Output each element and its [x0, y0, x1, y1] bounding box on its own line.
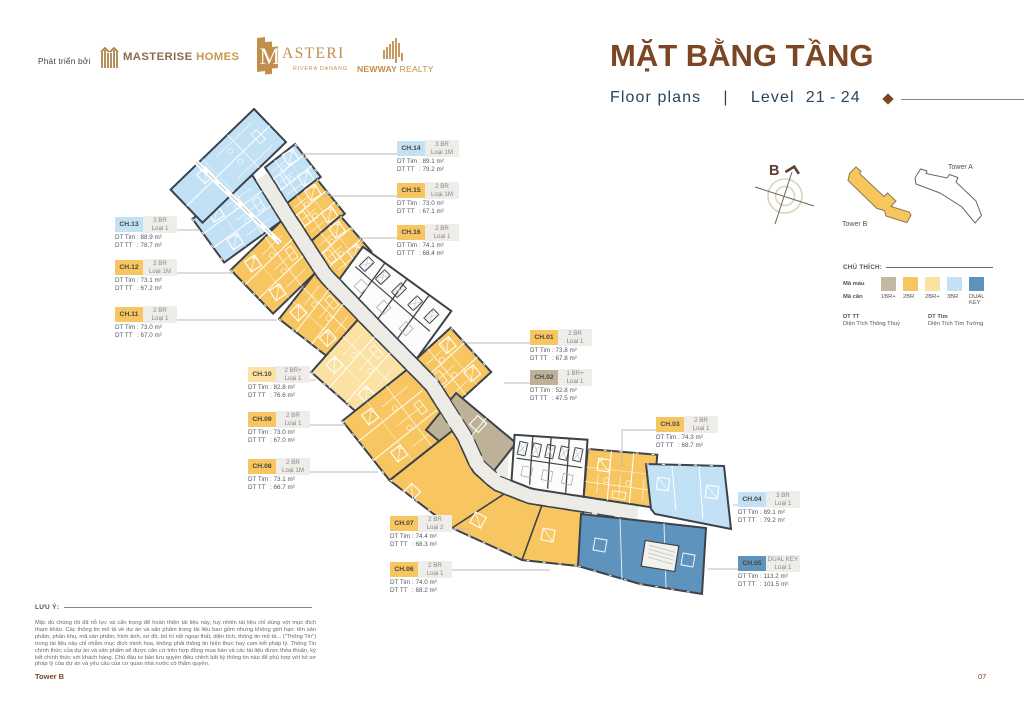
svg-text:B: B — [769, 163, 779, 179]
svg-text:Tower A: Tower A — [948, 164, 973, 171]
svg-text:Tower B: Tower B — [842, 221, 868, 228]
